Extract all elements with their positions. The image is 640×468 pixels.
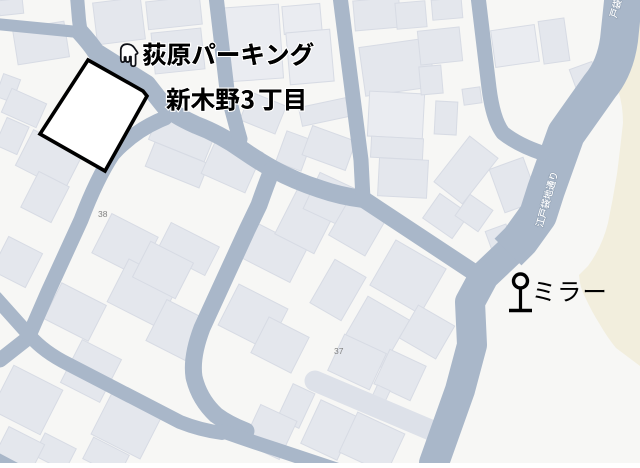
svg-text:38: 38 xyxy=(98,209,108,219)
svg-text:37: 37 xyxy=(334,346,344,356)
